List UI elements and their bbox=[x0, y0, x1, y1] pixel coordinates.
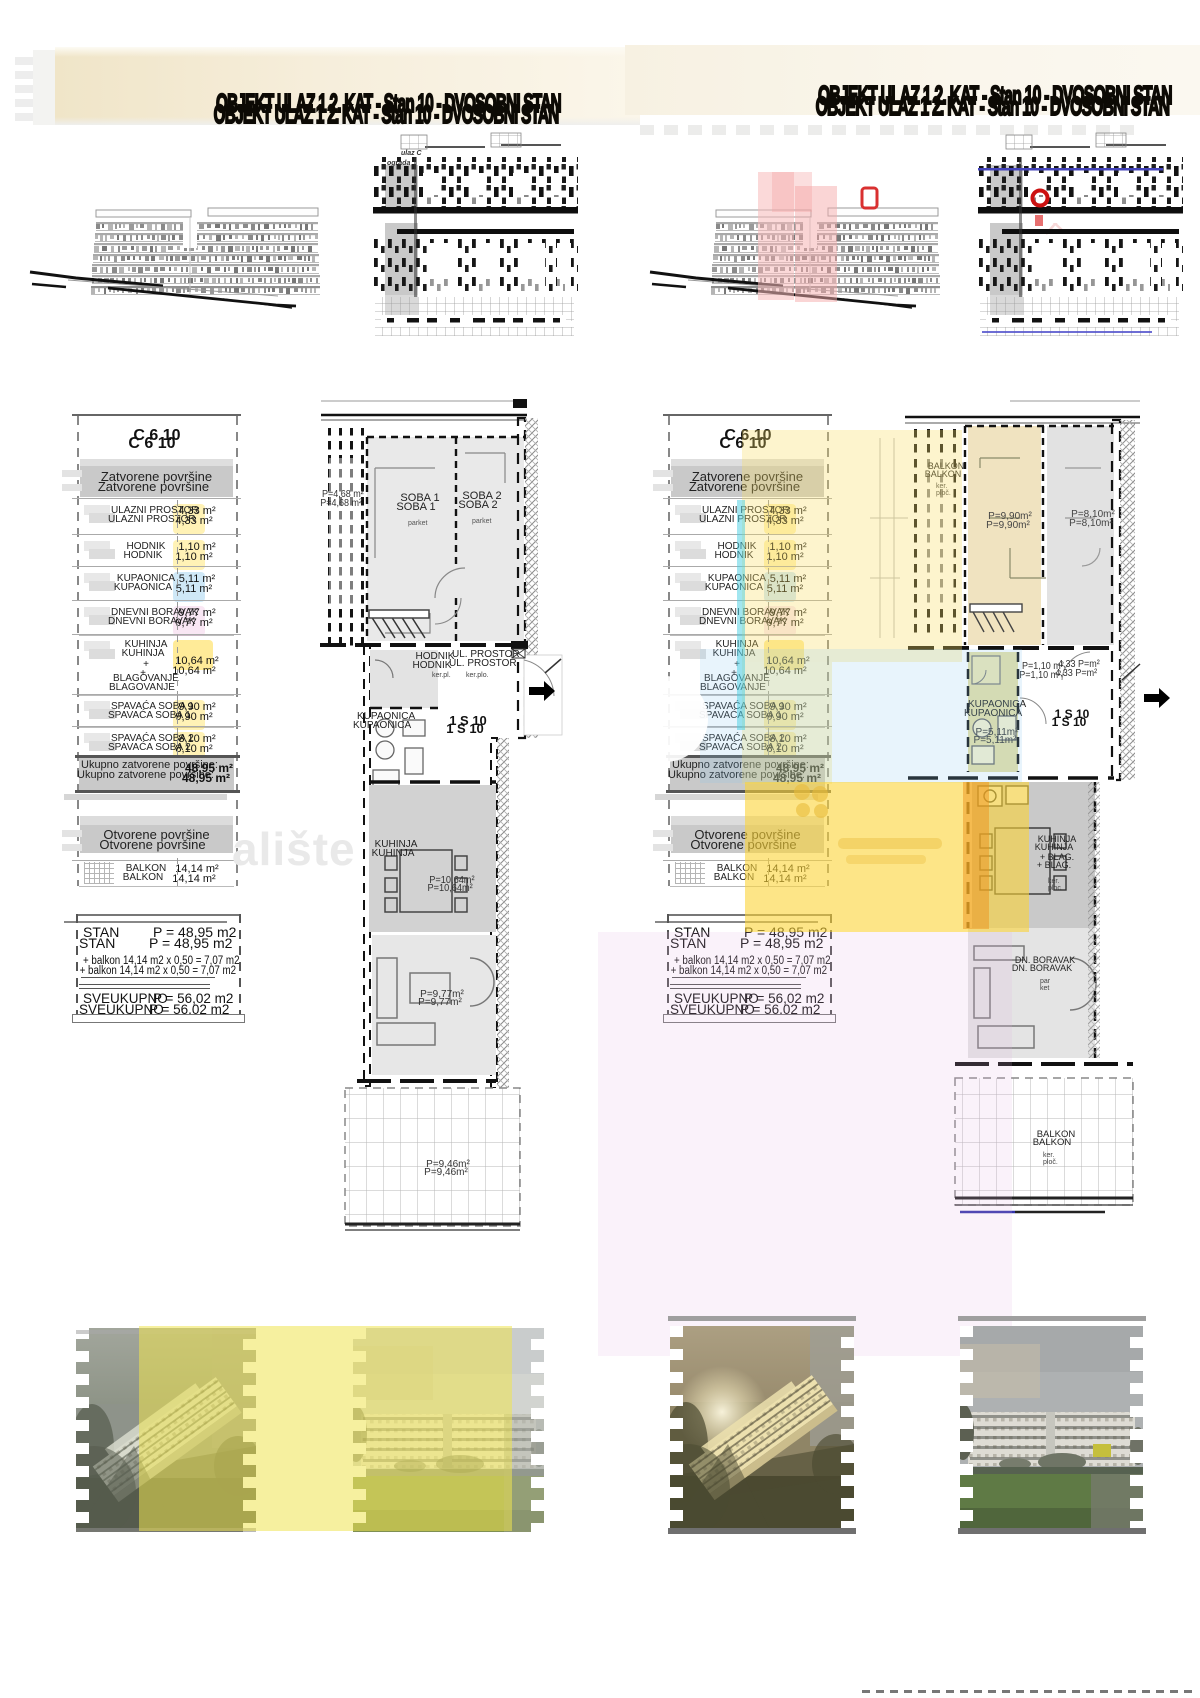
svg-text:ograda: ograda bbox=[387, 160, 410, 167]
svg-text:ulaz C: ulaz C bbox=[401, 150, 423, 157]
